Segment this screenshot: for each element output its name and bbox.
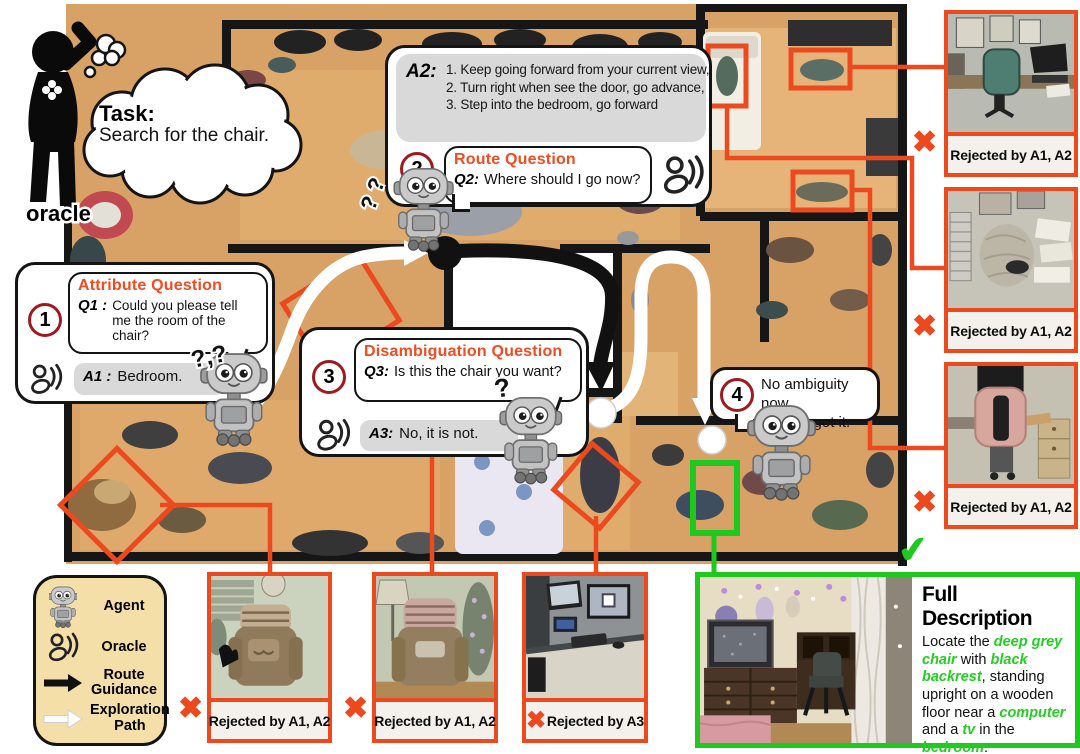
rejection-caption-text: Rejected by A3 bbox=[547, 713, 644, 729]
rejection-caption: ✖ Rejected by A3 bbox=[526, 698, 644, 739]
oracle-icon bbox=[660, 154, 706, 198]
target-photo-bedroom bbox=[700, 577, 912, 743]
dialog2-question-bubble: Route Question Q2: Where should I go now… bbox=[444, 146, 652, 204]
candidate-box-desk-chair bbox=[791, 50, 850, 88]
dialog4-line2: I think I got it. bbox=[761, 414, 877, 433]
candidate-photo bbox=[948, 191, 1074, 308]
candidate-photo bbox=[526, 576, 644, 698]
dialog3-a-label: A3: bbox=[369, 425, 393, 446]
candidate-box-armchair-1 bbox=[60, 448, 173, 561]
legend-route-label: Route Guidance bbox=[90, 668, 158, 700]
dialog3-badge: 3 bbox=[312, 360, 346, 394]
candidate-card-covered-chair: Rejected by A1, A2 bbox=[944, 187, 1078, 353]
reject-x-icon: ✖ bbox=[912, 128, 937, 158]
dialog2-q-text: Where should I go now? bbox=[484, 171, 640, 188]
oracle-icon bbox=[42, 632, 84, 664]
legend-box: Agent Oracle Route Guidance Exploration … bbox=[33, 575, 167, 746]
dialog2-a-line3: 3. Step into the bedroom, go forward bbox=[446, 96, 698, 114]
rejection-caption: Rejected by A1, A2 bbox=[948, 132, 1074, 173]
dialog1-q-text: Could you please tell me the room of the… bbox=[112, 297, 258, 343]
rejection-caption: Rejected by A1, A2 bbox=[211, 698, 328, 739]
candidate-card-armchair-1: Rejected by A1, A2 bbox=[207, 572, 332, 743]
dialog3-question-bubble: Disambiguation Question Q3: Is this the … bbox=[354, 338, 582, 402]
legend-agent-label: Agent bbox=[90, 599, 158, 615]
full-description-box: Full Description Locate the deep grey ch… bbox=[695, 572, 1080, 748]
candidate-card-computer-desk: ✖ Rejected by A3 bbox=[522, 572, 648, 743]
legend-path-row: Exploration Path bbox=[42, 703, 158, 735]
reject-x-icon: ✖ bbox=[912, 488, 937, 518]
candidate-card-office-chair: Rejected by A1, A2 bbox=[944, 10, 1078, 177]
candidate-photo bbox=[376, 576, 494, 698]
dialog1-q-label: Q1 : bbox=[78, 297, 107, 343]
dialog3-q-text: Is this the chair you want? bbox=[394, 363, 562, 380]
dialog2-a-line2: 2. Turn right when see the door, go adva… bbox=[446, 79, 698, 97]
oracle-icon bbox=[314, 418, 352, 454]
exploration-path-arrow-icon bbox=[42, 709, 84, 729]
desc-text: and a bbox=[922, 722, 962, 738]
figure-canvas: oracle bbox=[0, 0, 1080, 754]
dialog4-badge: 4 bbox=[720, 378, 754, 412]
dialog3-a-text: No, it is not. bbox=[399, 425, 478, 446]
route-guidance-arrow-icon bbox=[42, 673, 84, 693]
dialog2-a-line1: 1. Keep going forward from your current … bbox=[446, 61, 698, 79]
full-description-panel: Full Description Locate the deep grey ch… bbox=[912, 577, 1075, 743]
dialog1-panel: 1 Attribute Question Q1 : Could you plea… bbox=[15, 262, 275, 404]
dialog1-answer-box: A1 : Bedroom. bbox=[74, 363, 224, 395]
dialog2-a-label: A2: bbox=[406, 61, 437, 83]
rejection-caption: Rejected by A1, A2 bbox=[948, 484, 1074, 525]
route-arrowhead bbox=[585, 362, 615, 392]
accept-check-icon: ✔ bbox=[896, 531, 930, 570]
legend-agent-row: Agent bbox=[42, 586, 158, 628]
dialog1-a-text: Bedroom. bbox=[117, 368, 182, 390]
legend-oracle-row: Oracle bbox=[42, 632, 158, 664]
task-title: Task: bbox=[99, 102, 289, 125]
task-bubble-text: Task: Search for the chair. bbox=[99, 102, 289, 147]
candidate-box-bench bbox=[793, 172, 852, 210]
route-start-dot bbox=[428, 236, 462, 270]
legend-oracle-label: Oracle bbox=[90, 640, 158, 656]
legend-route-row: Route Guidance bbox=[42, 668, 158, 700]
dialog3-q-label: Q3: bbox=[364, 363, 389, 380]
candidate-box-bed-chair bbox=[708, 46, 746, 106]
dialog2-answer-box: A2: 1. Keep going forward from your curr… bbox=[396, 54, 706, 142]
dialog1-badge: 1 bbox=[28, 303, 62, 337]
reject-x-icon: ✖ bbox=[912, 312, 937, 342]
desc-text: in the bbox=[975, 722, 1015, 738]
exploration-node-2 bbox=[698, 426, 726, 454]
dialog3-title: Disambiguation Question bbox=[364, 343, 572, 361]
rejection-caption: Rejected by A1, A2 bbox=[948, 308, 1074, 349]
exploration-arrowhead-1 bbox=[404, 240, 428, 266]
dialog1-title: Attribute Question bbox=[78, 277, 258, 295]
full-description-title: Full Description bbox=[922, 583, 1067, 631]
desc-text: with bbox=[957, 652, 991, 668]
dialog2-badge: 2 bbox=[400, 152, 434, 186]
reject-x-icon: ✖ bbox=[178, 694, 203, 724]
legend-path-label: Exploration Path bbox=[90, 703, 170, 735]
candidate-photo bbox=[948, 366, 1074, 484]
desc-highlight: bedroom bbox=[922, 740, 984, 754]
dialog4-panel: 4 No ambiguity now, I think I got it. bbox=[710, 367, 880, 422]
candidate-photo bbox=[948, 14, 1074, 132]
candidate-card-pink-chair: Rejected by A1, A2 bbox=[944, 362, 1078, 529]
target-box-grey-chair bbox=[693, 463, 737, 533]
dialog3-answer-box: A3: No, it is not. bbox=[360, 420, 518, 451]
reject-x-icon: ✖ bbox=[343, 694, 368, 724]
desc-highlight: computer bbox=[999, 705, 1065, 721]
dialog4-line1: No ambiguity now, bbox=[761, 376, 877, 414]
oracle-icon bbox=[28, 363, 64, 397]
dialog2-title: Route Question bbox=[454, 151, 642, 169]
reject-x-icon: ✖ bbox=[526, 709, 546, 733]
desc-text: . bbox=[984, 740, 988, 754]
dialog1-a-label: A1 : bbox=[83, 368, 111, 390]
exploration-node-1 bbox=[586, 398, 616, 428]
dialog3-panel: 3 Disambiguation Question Q3: Is this th… bbox=[299, 327, 589, 457]
oracle-label: oracle bbox=[26, 201, 91, 226]
candidate-card-armchair-2: Rejected by A1, A2 bbox=[372, 572, 498, 743]
rejection-caption: Rejected by A1, A2 bbox=[376, 698, 494, 739]
dialog2-q-label: Q2: bbox=[454, 171, 479, 188]
dialog2-panel: A2: 1. Keep going forward from your curr… bbox=[385, 45, 712, 207]
full-description-body: Locate the deep grey chair with black ba… bbox=[922, 634, 1067, 754]
desc-highlight: tv bbox=[962, 722, 975, 738]
robot-icon bbox=[42, 586, 84, 628]
dialog1-question-bubble: Attribute Question Q1 : Could you please… bbox=[68, 272, 268, 354]
task-text: Search for the chair. bbox=[99, 125, 289, 147]
desc-text: Locate the bbox=[922, 634, 994, 650]
candidate-photo bbox=[211, 576, 328, 698]
